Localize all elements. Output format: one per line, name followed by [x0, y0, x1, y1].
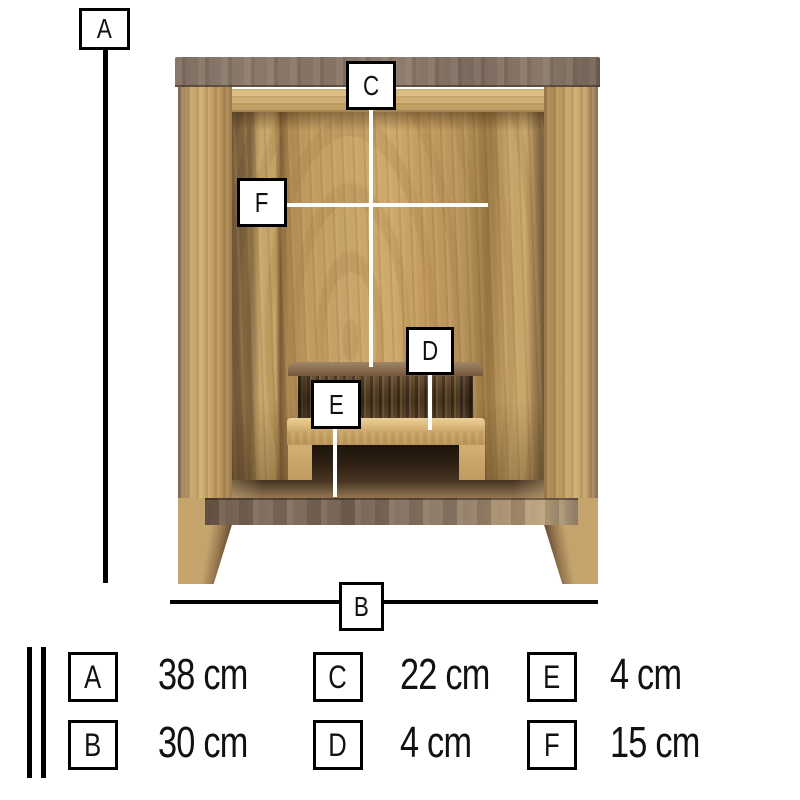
marker-f-label: F — [255, 189, 269, 217]
cabinet-right-side-panel — [544, 87, 598, 498]
legend-key-b-label: B — [84, 729, 101, 761]
marker-b: B — [339, 582, 384, 631]
cabinet-base-rail — [205, 498, 578, 525]
marker-e: E — [311, 380, 361, 429]
legend-key-e: E — [527, 652, 577, 702]
legend-divider-bar — [41, 647, 46, 778]
interior-width-line-f — [286, 203, 488, 207]
marker-f: F — [237, 178, 287, 227]
legend-key-d: D — [313, 720, 363, 770]
legend-key-a: A — [68, 652, 118, 702]
product-dimension-diagram: A B C D E F A 38 cm B 30 cm C 22 cm D 4 … — [0, 0, 800, 800]
legend-key-d-label: D — [329, 729, 347, 761]
upper-step-line-d — [428, 375, 432, 430]
legend-key-c: C — [313, 652, 363, 702]
lower-step-line-e — [333, 429, 337, 497]
step-stand-left-leg — [288, 445, 312, 481]
marker-e-label: E — [329, 391, 344, 419]
cabinet-left-side-panel — [178, 87, 232, 498]
marker-b-label: B — [354, 593, 369, 621]
legend-key-a-label: A — [84, 661, 101, 693]
marker-c: C — [346, 61, 396, 110]
marker-d: D — [406, 327, 454, 375]
legend-key-c-label: C — [329, 661, 347, 693]
legend-key-e-label: E — [543, 661, 560, 693]
height-measure-line-a — [103, 50, 108, 583]
step-stand-right-leg — [459, 445, 485, 481]
marker-a: A — [79, 8, 130, 50]
cabinet-floor-shelf — [232, 480, 544, 498]
legend-divider-bar — [27, 647, 32, 778]
legend-key-b: B — [68, 720, 118, 770]
step-stand-lower-front — [287, 431, 485, 445]
legend-key-f-label: F — [544, 729, 560, 761]
marker-a-label: A — [97, 15, 112, 43]
marker-c-label: C — [363, 72, 379, 100]
legend-key-f: F — [527, 720, 577, 770]
width-measure-line-b — [170, 600, 598, 604]
interior-height-line-c — [369, 110, 373, 367]
marker-d-label: D — [422, 337, 438, 365]
